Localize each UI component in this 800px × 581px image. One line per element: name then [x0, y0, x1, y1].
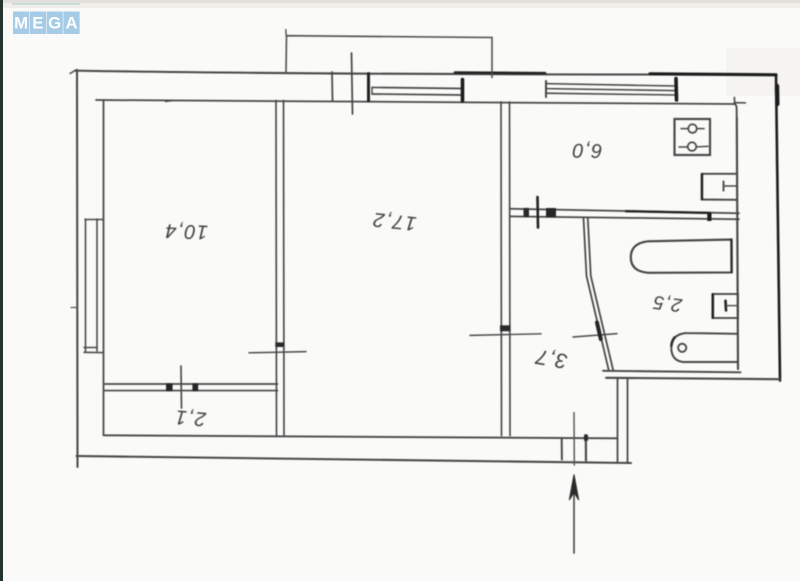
svg-text:M: M: [14, 14, 28, 33]
svg-text:G: G: [48, 14, 61, 33]
svg-text:E: E: [32, 14, 43, 33]
svg-text:17,2: 17,2: [371, 208, 418, 235]
svg-text:6,0: 6,0: [571, 139, 602, 162]
svg-text:2,1: 2,1: [174, 405, 208, 430]
svg-text:2,5: 2,5: [651, 291, 684, 316]
svg-text:10,4: 10,4: [164, 219, 208, 243]
svg-text:A: A: [65, 14, 77, 33]
